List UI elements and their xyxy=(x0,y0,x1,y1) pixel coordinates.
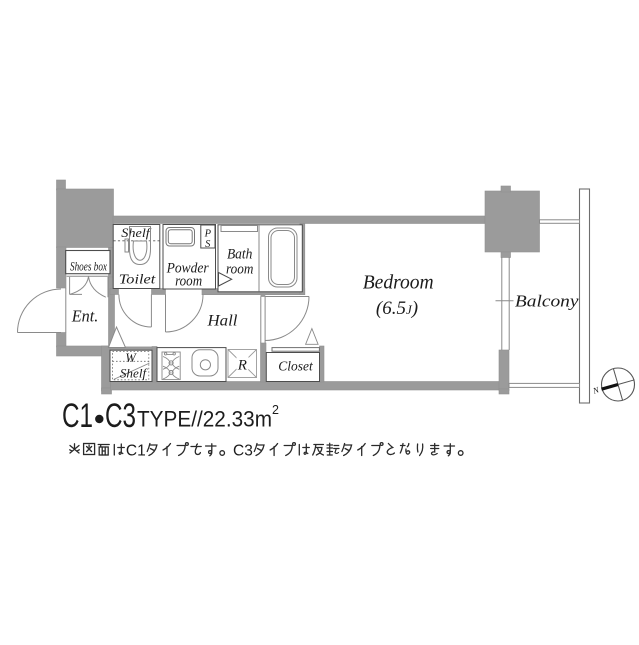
svg-text:2: 2 xyxy=(272,403,279,417)
svg-text:C1: C1 xyxy=(62,397,93,435)
svg-text:room: room xyxy=(175,273,202,289)
svg-text:W: W xyxy=(125,351,137,365)
svg-text:Bedroom: Bedroom xyxy=(363,272,434,294)
svg-text:S: S xyxy=(205,239,211,250)
svg-text:Toilet: Toilet xyxy=(119,273,157,288)
svg-text:C3: C3 xyxy=(233,443,253,460)
svg-text:Hall: Hall xyxy=(206,313,237,330)
svg-text:R: R xyxy=(237,358,247,374)
svg-text:Closet: Closet xyxy=(278,359,314,374)
svg-text:Shelf: Shelf xyxy=(120,366,149,381)
svg-text:C1: C1 xyxy=(126,443,146,460)
svg-text:Balcony: Balcony xyxy=(515,292,579,311)
svg-text:Bath: Bath xyxy=(227,246,253,262)
svg-text:Shoes box: Shoes box xyxy=(70,260,107,274)
svg-text:TYPE//22.33m: TYPE//22.33m xyxy=(137,407,272,432)
svg-text:room: room xyxy=(226,262,254,278)
svg-text:Shelf: Shelf xyxy=(121,226,151,240)
svg-text:P: P xyxy=(204,228,212,239)
svg-text:Ent.: Ent. xyxy=(71,306,99,325)
svg-text:C3: C3 xyxy=(105,397,136,435)
svg-text:(6.5J): (6.5J) xyxy=(376,298,418,319)
